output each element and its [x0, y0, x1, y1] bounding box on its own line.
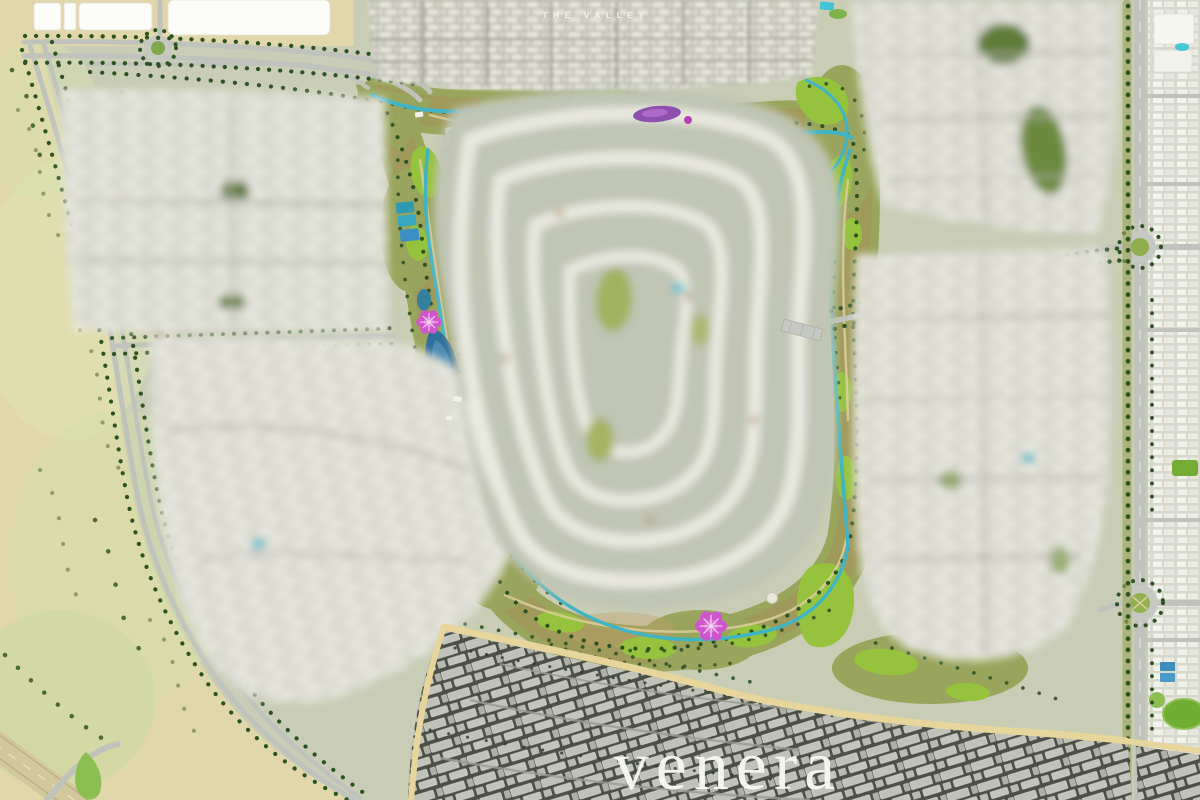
rooftop-lawn — [829, 9, 847, 19]
vacant-parcel — [168, 0, 330, 35]
city-court — [1160, 673, 1175, 682]
sand-spot — [647, 517, 654, 524]
court — [396, 201, 415, 214]
roundabout-island — [1131, 238, 1149, 256]
right-cluster — [853, 248, 1112, 661]
cluster-pool — [1022, 454, 1035, 462]
cluster-green — [1050, 546, 1070, 574]
central-loop-cluster — [434, 89, 841, 609]
park-lawn — [1149, 692, 1165, 708]
roundabout-island — [151, 41, 165, 55]
court — [399, 228, 419, 242]
cluster-green — [222, 182, 248, 198]
park-oval-field — [1163, 699, 1200, 729]
sand-spot — [751, 417, 758, 424]
masterplan-svg: THE VALLEY venera — [0, 0, 1200, 800]
sand-spot — [685, 293, 692, 300]
village-houses-east — [1136, 746, 1200, 800]
magenta-garden-dot — [684, 116, 692, 124]
lawn — [836, 456, 856, 500]
cluster-base — [434, 89, 841, 609]
city-green-field — [1172, 460, 1198, 476]
pond — [417, 289, 431, 311]
court — [398, 214, 417, 227]
east-city-strip — [1148, 0, 1200, 800]
rooftop-pool — [820, 1, 835, 10]
cluster-green — [978, 24, 1030, 64]
top-right-cluster — [852, 0, 1118, 236]
brand-logo: venera — [614, 728, 843, 800]
city-court — [1160, 662, 1175, 671]
vacant-parcel — [34, 3, 61, 30]
city-big-building — [1154, 50, 1192, 72]
masterplan-image: THE VALLEY venera — [0, 0, 1200, 800]
sand-spot — [557, 211, 564, 218]
district-label: THE VALLEY — [542, 10, 649, 20]
vacant-parcel — [64, 3, 76, 30]
lake-dock — [446, 416, 452, 420]
inner-court-green — [690, 314, 710, 346]
city-pool — [1175, 43, 1189, 51]
inner-court-green — [586, 418, 614, 462]
sand-spot — [502, 355, 509, 362]
city-big-building — [1154, 14, 1194, 44]
vacant-parcel — [79, 3, 152, 30]
round-plaza — [767, 593, 778, 604]
left-upper-cluster — [62, 88, 389, 334]
